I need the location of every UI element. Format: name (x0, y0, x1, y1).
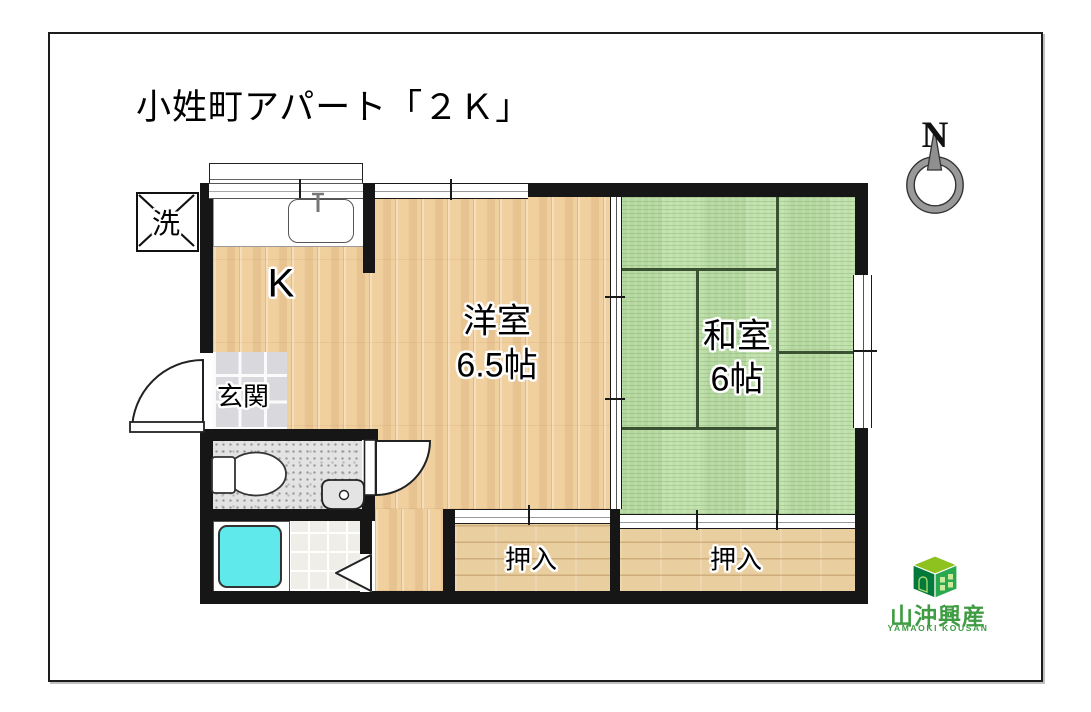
sliding-door-mid-line (620, 522, 855, 523)
room-label-kitchen: K (268, 262, 295, 307)
window-mid-line (209, 191, 363, 192)
toilet-floor (213, 441, 363, 510)
room-label-closet-left: 押入 (505, 540, 557, 577)
wall-right-upper (855, 183, 868, 275)
room-label-japanese-room: 和室 (703, 309, 771, 358)
room-label-entrance: 玄関 (217, 377, 269, 414)
window-sill-line (210, 179, 362, 180)
sliding-door-mid-line (455, 517, 610, 518)
room-size-japanese-room: 6帖 (711, 352, 764, 401)
floor-plan-page: 小姓町アパート「２Ｋ」 (0, 0, 1091, 712)
wood-floor-strip (375, 509, 443, 591)
wall-kitchen-stub (363, 183, 375, 273)
window-tick (299, 179, 301, 198)
fusuma-mid-line (616, 197, 617, 509)
wall-closet-left (443, 509, 455, 604)
tatami-mat-line (776, 197, 779, 514)
kitchen-wall-window (209, 183, 363, 199)
wall-toilet-right (362, 492, 375, 521)
room-label-western-room: 洋室 (463, 294, 531, 343)
room-label-laundry: 洗 (152, 202, 180, 242)
wall-right-lower (855, 428, 868, 604)
wall-top (528, 183, 868, 197)
sliding-door-tick (528, 505, 530, 525)
kitchen-sink (288, 199, 354, 243)
fusuma-tick (605, 296, 625, 298)
tatami-mat-line (618, 427, 779, 430)
window-tick (853, 350, 877, 352)
room-label-closet-right: 押入 (710, 540, 762, 577)
entrance-door-opening (200, 354, 213, 428)
wall-bathroom-right (360, 521, 372, 556)
closet-right-sliding-door (620, 514, 855, 529)
kitchen-bay-window (209, 163, 363, 184)
sliding-door-tick (776, 510, 778, 530)
closet-left-sliding-door (455, 509, 610, 524)
wall-toilet-top (200, 429, 378, 441)
wall-toilet-bottom (200, 509, 372, 521)
wall-bottom (200, 591, 868, 604)
room-size-western-room: 6.5帖 (456, 338, 537, 387)
tatami-mat-line (618, 268, 779, 271)
fusuma-sliding-door (610, 197, 622, 509)
bathtub-deck (213, 521, 290, 593)
fusuma-tick (605, 398, 625, 400)
wall-closet-divider (610, 509, 620, 604)
tatami-mat-line (776, 351, 855, 354)
window-tick (450, 179, 452, 200)
company-name-romaji: YAMAOKI KOUSAN (884, 623, 992, 633)
tatami-mat-line (696, 268, 699, 429)
wall-left-upper (200, 183, 213, 353)
page-title: 小姓町アパート「２Ｋ」 (136, 79, 531, 130)
sliding-door-tick (696, 510, 698, 530)
